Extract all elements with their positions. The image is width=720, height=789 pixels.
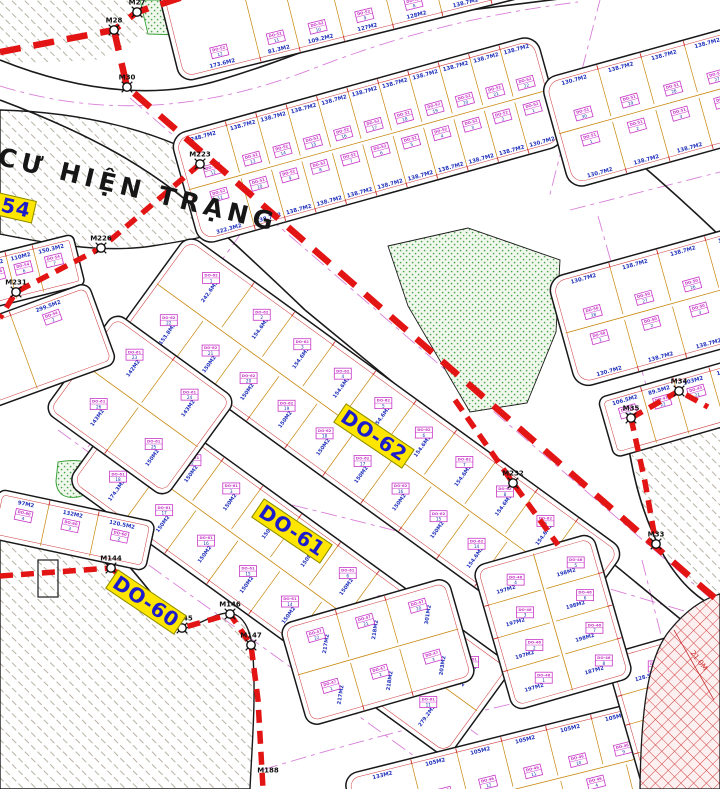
- red-crosshatch-zone: [640, 594, 720, 789]
- parcel-badge-lot: 14: [287, 602, 293, 607]
- survey-marker-label: M147: [240, 632, 262, 640]
- parcel-badge-lot: 4: [514, 580, 517, 585]
- parcel-badge-code: DO-46: [597, 655, 611, 660]
- parcel-badge-lot: 5: [574, 563, 577, 568]
- parcel-badge: DO-6111: [420, 697, 437, 708]
- parcel-badge-code: DO-62: [377, 398, 391, 403]
- parcel-badge: DO-627: [456, 457, 473, 468]
- survey-marker-label: M188: [257, 767, 279, 775]
- parcel-badge-code: DO-61: [422, 697, 436, 702]
- parcel-badge: DO-6218: [316, 428, 333, 439]
- parcel-badge: DO-6214: [468, 538, 485, 549]
- parcel-badge-lot: 19: [284, 406, 290, 411]
- parcel-badge-lot: 16: [398, 489, 404, 494]
- parcel-badge-lot: 25: [151, 444, 157, 449]
- survey-marker-label: M144: [100, 555, 122, 563]
- parcel-badge-code: DO-62: [242, 373, 256, 378]
- parcel-badge-code: DO-46: [537, 672, 551, 677]
- survey-marker-label: M34: [671, 378, 688, 386]
- parcel-badge-code: DO-62: [356, 456, 370, 461]
- parcel-badge: DO-6115: [240, 566, 257, 577]
- survey-marker: M188: [257, 767, 279, 775]
- parcel-badge: DO-613: [223, 483, 240, 494]
- parcel-badge: DO-621: [203, 272, 220, 283]
- parcel-badge-lot: 11: [426, 702, 432, 707]
- survey-marker-label: M231: [5, 279, 27, 287]
- green-zone-center: [388, 228, 560, 412]
- parcel-badge-lot: 2: [260, 315, 263, 320]
- parcel-badge: DO-6118: [110, 471, 127, 482]
- parcel-badge-lot: 7: [463, 462, 466, 467]
- parcel-badge: DO-6222: [160, 315, 177, 326]
- parcel-badge-code: DO-61: [341, 568, 355, 573]
- parcel-badge: DO-628: [496, 486, 513, 497]
- parcel-badge-lot: 26: [96, 404, 102, 409]
- parcel-badge-code: DO-62: [336, 368, 350, 373]
- parcel-badge-code: DO-61: [225, 483, 239, 488]
- survey-marker-label: M33: [648, 531, 665, 539]
- parcel-badge-lot: 1: [210, 278, 213, 283]
- parcel-badge-code: DO-46: [578, 590, 592, 595]
- parcel-badge-code: DO-62: [417, 427, 431, 432]
- parcel-badge-lot: 3: [230, 489, 233, 494]
- parcel-block: 130.7M2DO-5028138.7M2DO-5027138.7M2DO-50…: [547, 207, 720, 389]
- cadastral-map: 173.6M2DO-521281.3M2DO-5211109.2M2DO-521…: [0, 0, 720, 789]
- parcel-badge: DO-6221: [202, 345, 219, 356]
- survey-marker-label: M35: [623, 405, 640, 413]
- parcel-badge-code: DO-61: [283, 596, 297, 601]
- parcel-badge-lot: 3: [524, 613, 527, 618]
- parcel-badge-lot: 18: [115, 477, 121, 482]
- parcel-badge-lot: 23: [132, 355, 138, 360]
- parcel-badge-code: DO-62: [162, 315, 176, 320]
- parcel-badge-lot: 1: [542, 678, 545, 683]
- parcel-badge-lot: 6: [584, 596, 587, 601]
- parcel-badge-code: DO-61: [128, 349, 142, 354]
- parcel-badge-code: DO-46: [569, 557, 583, 562]
- parcel-badge: DO-466: [577, 590, 594, 601]
- map-canvas: 173.6M2DO-521281.3M2DO-5211109.2M2DO-521…: [0, 0, 720, 789]
- parcel-badge-lot: 8: [602, 661, 605, 666]
- parcel-badge-lot: 6: [346, 573, 349, 578]
- parcel-badge-code: DO-62: [318, 428, 332, 433]
- parcel-badge-code: DO-61: [92, 399, 106, 404]
- parcel-badge: DO-464: [507, 574, 524, 585]
- parcel-badge-code: DO-62: [296, 339, 310, 344]
- parcel-badge-code: DO-62: [204, 345, 218, 350]
- parcel-badge-code: DO-62: [432, 511, 446, 516]
- parcel-badge: DO-465: [567, 557, 584, 568]
- parcel-badge-code: DO-62: [458, 457, 472, 462]
- parcel-badge-code: DO-61: [147, 439, 161, 444]
- parcel-badge-code: DO-46: [518, 607, 532, 612]
- parcel-badge-lot: 4: [341, 374, 344, 379]
- parcel-badge-lot: 17: [360, 461, 366, 466]
- parcel-badge-lot: 21: [208, 351, 214, 356]
- parcel-badge-code: DO-61: [183, 389, 197, 394]
- parcel-badge-lot: 20: [246, 379, 252, 384]
- parcel-block: 130.7M2DO-5130138.7M2DO-5129138.7M2DO-51…: [540, 2, 720, 189]
- parcel-badge: DO-6124: [181, 389, 198, 400]
- parcel-badge-code: DO-61: [111, 471, 125, 476]
- parcel-badge: DO-6116: [198, 535, 215, 546]
- parcel-badge: DO-6220: [240, 373, 257, 384]
- parcel-badge: DO-6217: [354, 455, 371, 466]
- survey-marker-label: M226: [90, 235, 112, 243]
- parcel-badge: DO-467: [586, 622, 603, 633]
- parcel-badge-lot: 2: [533, 645, 536, 650]
- parcel-badge-lot: 3: [301, 345, 304, 350]
- parcel-badge-lot: 18: [322, 434, 328, 439]
- parcel-badge: DO-6117: [156, 505, 173, 516]
- parcel-badge-lot: 6: [423, 433, 426, 438]
- hatch-zone-topleft: [0, 0, 148, 64]
- parcel-badge: DO-461: [535, 672, 552, 683]
- parcel-badge-code: DO-62: [204, 273, 218, 278]
- parcel-badge: DO-625: [375, 398, 392, 409]
- parcel-badge-code: DO-61: [199, 535, 213, 540]
- parcel-badge-code: DO-61: [241, 566, 255, 571]
- parcel-badge-lot: 17: [162, 511, 168, 516]
- parcel-badge: DO-624: [334, 368, 351, 379]
- parcel-badge-lot: 14: [474, 544, 480, 549]
- parcel-badge-lot: 15: [436, 517, 442, 522]
- parcel-badge-code: DO-62: [470, 538, 484, 543]
- parcel-badge: DO-468: [595, 655, 612, 666]
- parcel-badge-lot: 7: [593, 628, 596, 633]
- parcel-badge-lot: 22: [166, 321, 172, 326]
- parcel-badge-code: DO-61: [158, 505, 172, 510]
- parcel-badge-lot: 16: [203, 541, 209, 546]
- parcel-badge: DO-462: [526, 640, 543, 651]
- parcel-badge-lot: 15: [245, 571, 251, 576]
- parcel-badge-lot: 8: [504, 492, 507, 497]
- parcel-badge: DO-626: [415, 427, 432, 438]
- parcel-badge: DO-6126: [90, 399, 107, 410]
- parcel-badge: DO-616: [339, 568, 356, 579]
- parcel-badge-code: DO-46: [528, 640, 542, 645]
- survey-marker-label: M146: [219, 601, 241, 609]
- parcel-badge: DO-6215: [430, 511, 447, 522]
- parcel-badge: DO-463: [517, 607, 534, 618]
- parcel-badge-lot: 5: [382, 404, 385, 409]
- parcel-badge-code: DO-46: [588, 622, 602, 627]
- parcel-badge-code: DO-46: [509, 574, 523, 579]
- parcel-badge: DO-6125: [145, 438, 162, 449]
- parcel-badge: DO-6219: [278, 400, 295, 411]
- parcel-badge: DO-6123: [126, 349, 143, 360]
- parcel-badge-code: DO-62: [255, 309, 269, 314]
- parcel-badge: DO-6216: [392, 483, 409, 494]
- parcel-badge: DO-622: [253, 309, 270, 320]
- parcel-badge-code: DO-62: [394, 483, 408, 488]
- survey-marker-label: M27: [129, 0, 146, 7]
- survey-marker-label: M28: [106, 17, 123, 25]
- survey-marker-label: M223: [189, 151, 211, 159]
- survey-marker-label: M30: [119, 74, 136, 82]
- parcel-badge: DO-6114: [281, 596, 298, 607]
- parcel-badge-code: DO-62: [280, 400, 294, 405]
- survey-marker-label: M232: [502, 470, 524, 478]
- parcel-badge-lot: 24: [187, 395, 193, 400]
- parcel-badge: DO-623: [294, 339, 311, 350]
